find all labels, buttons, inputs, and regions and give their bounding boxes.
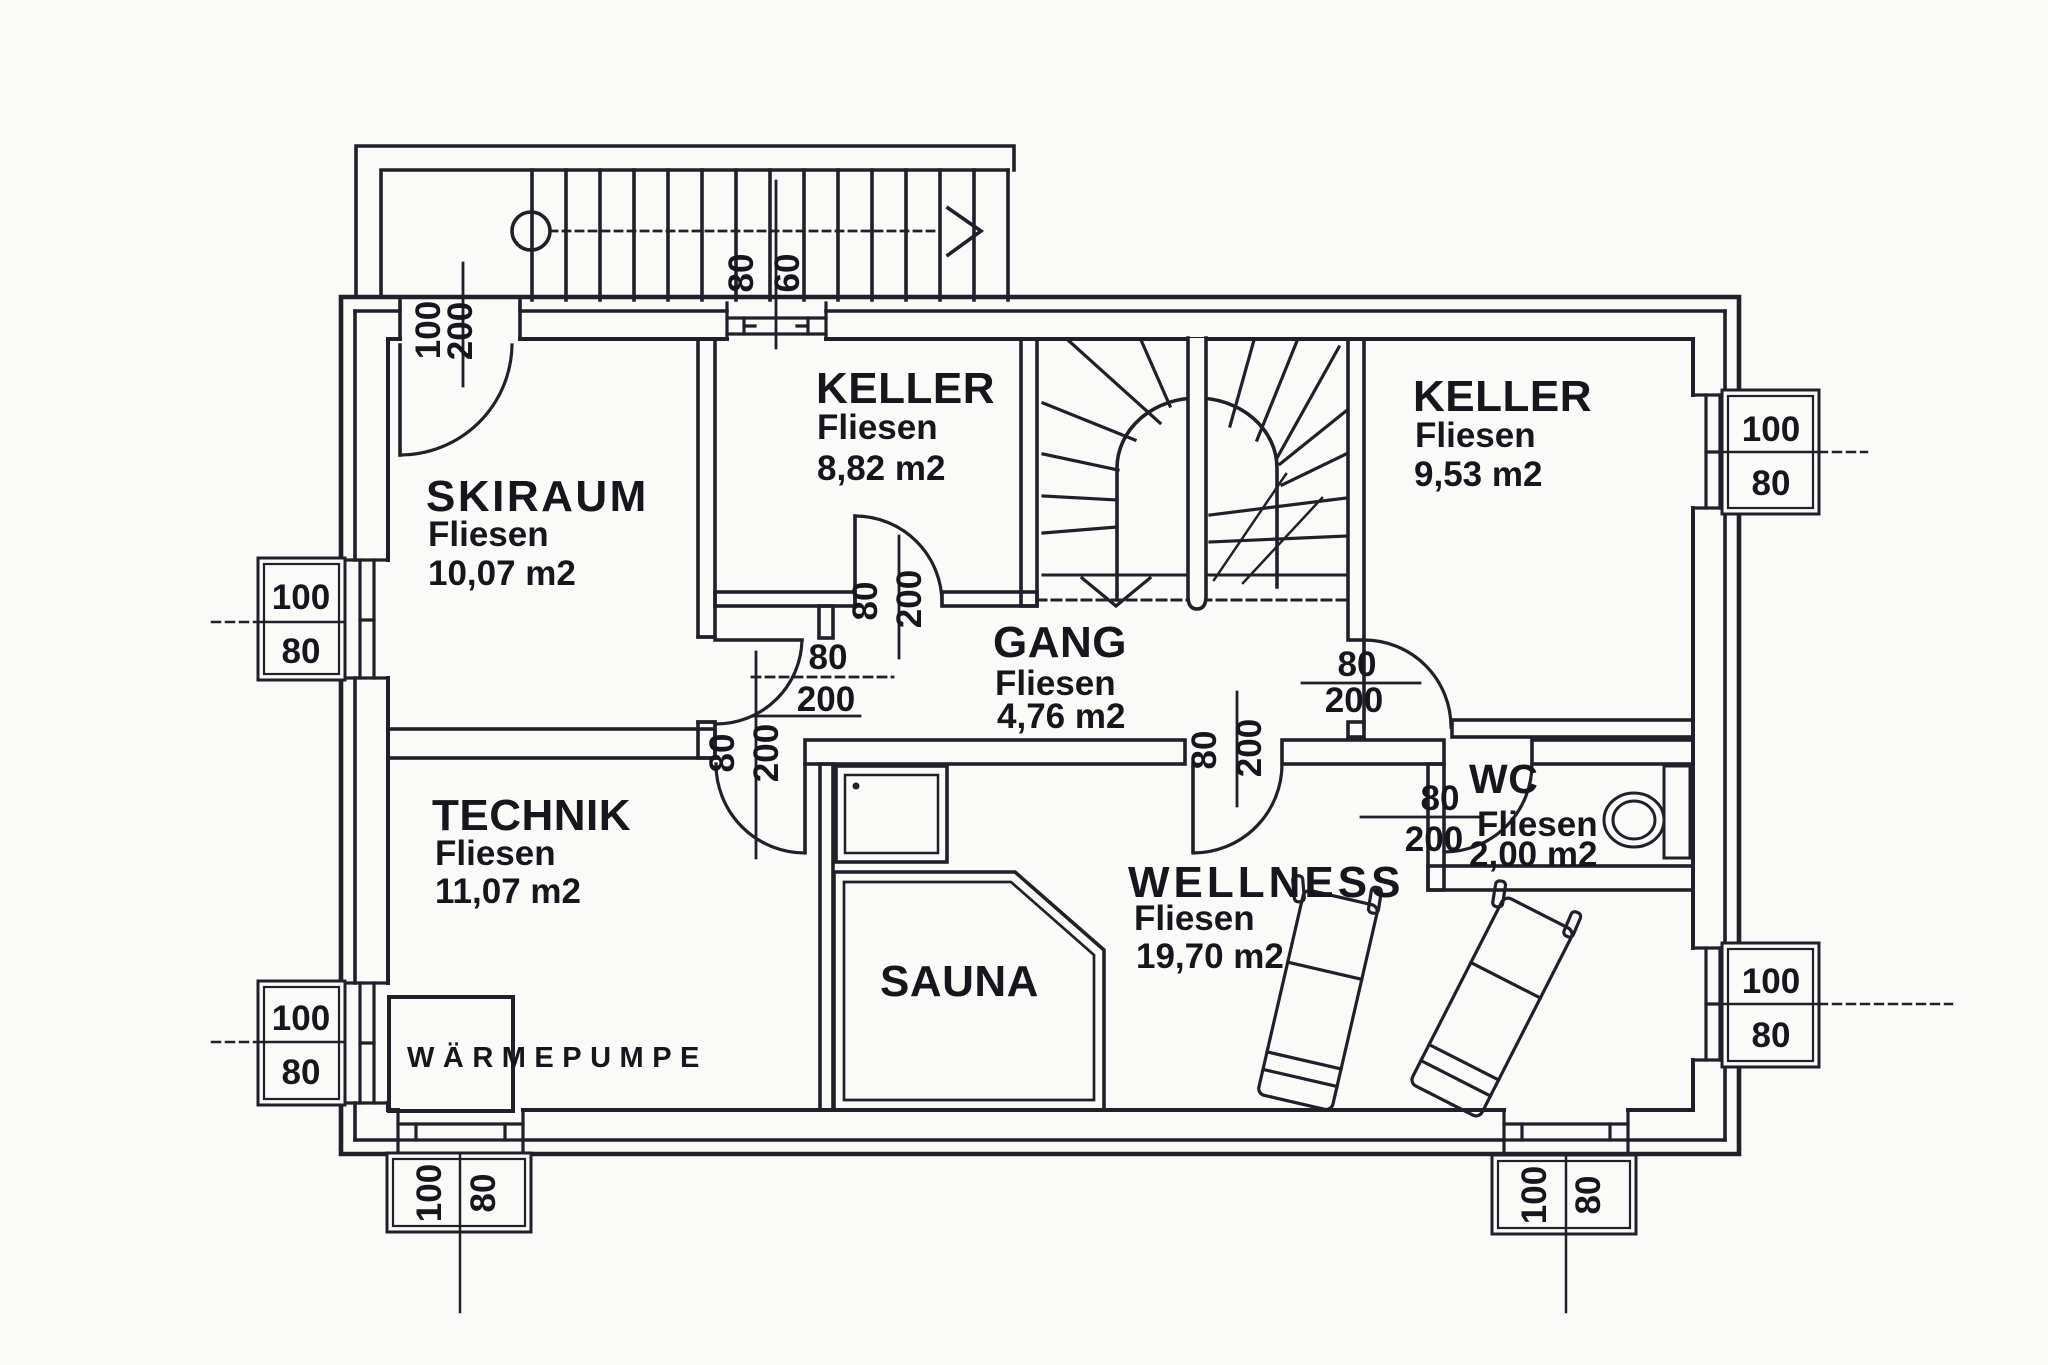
svg-text:200: 200 [1230, 719, 1269, 777]
svg-text:80: 80 [282, 1053, 321, 1092]
svg-text:80: 80 [1752, 1016, 1791, 1055]
svg-text:80: 80 [1185, 731, 1224, 770]
svg-text:100: 100 [272, 999, 330, 1038]
svg-text:80: 80 [1569, 1176, 1608, 1215]
svg-text:80: 80 [846, 582, 885, 621]
svg-text:80: 80 [464, 1174, 503, 1213]
svg-text:8,82 m2: 8,82 m2 [817, 449, 945, 488]
svg-text:GANG: GANG [993, 618, 1127, 667]
svg-text:60: 60 [768, 254, 807, 293]
svg-text:100: 100 [1742, 962, 1800, 1001]
svg-text:100: 100 [410, 1164, 449, 1222]
svg-text:100: 100 [1742, 410, 1800, 449]
svg-text:WÄRMEPUMPE: WÄRMEPUMPE [407, 1041, 708, 1074]
svg-text:KELLER: KELLER [1413, 372, 1592, 421]
svg-text:TECHNIK: TECHNIK [432, 791, 631, 840]
svg-text:200: 200 [1405, 820, 1463, 859]
svg-text:2,00 m2: 2,00 m2 [1469, 835, 1597, 874]
svg-text:10,07 m2: 10,07 m2 [428, 554, 576, 593]
svg-text:Fliesen: Fliesen [1415, 416, 1536, 455]
svg-text:80: 80 [1421, 779, 1460, 818]
svg-text:WC: WC [1469, 756, 1538, 802]
svg-text:9,53 m2: 9,53 m2 [1414, 455, 1542, 494]
svg-text:200: 200 [797, 680, 855, 719]
svg-text:80: 80 [1752, 464, 1791, 503]
svg-text:80: 80 [722, 254, 761, 293]
svg-text:200: 200 [747, 724, 786, 782]
svg-text:100: 100 [1515, 1166, 1554, 1224]
svg-text:11,07 m2: 11,07 m2 [435, 872, 581, 911]
svg-text:4,76 m2: 4,76 m2 [997, 697, 1125, 736]
svg-text:Fliesen: Fliesen [817, 408, 938, 447]
svg-text:80: 80 [1338, 645, 1377, 684]
svg-text:Fliesen: Fliesen [428, 515, 549, 554]
svg-text:KELLER: KELLER [816, 364, 995, 413]
svg-text:19,70 m2: 19,70 m2 [1136, 937, 1284, 976]
svg-text:Fliesen: Fliesen [1134, 899, 1255, 938]
svg-text:Fliesen: Fliesen [435, 834, 556, 873]
svg-text:200: 200 [890, 570, 929, 628]
svg-text:80: 80 [282, 632, 321, 671]
svg-text:80: 80 [703, 734, 742, 773]
svg-text:100: 100 [272, 578, 330, 617]
svg-text:200: 200 [441, 302, 480, 360]
svg-text:200: 200 [1325, 681, 1383, 720]
svg-text:SKIRAUM: SKIRAUM [426, 472, 649, 521]
svg-text:SAUNA: SAUNA [880, 957, 1039, 1006]
svg-text:80: 80 [809, 638, 848, 677]
